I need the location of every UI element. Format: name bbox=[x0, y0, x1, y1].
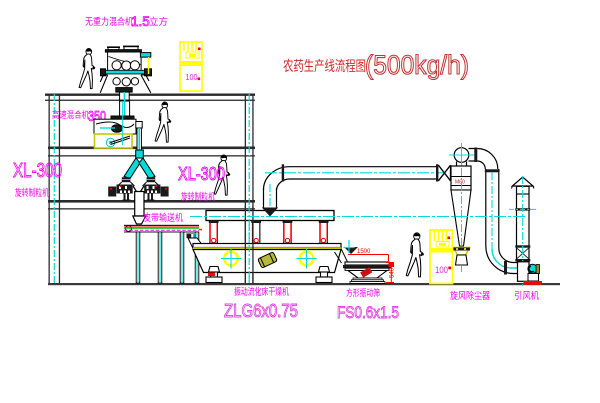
svg-text:1500: 1500 bbox=[357, 249, 371, 255]
svg-text:高速混合机: 高速混合机 bbox=[52, 109, 89, 120]
svg-text:XL-300: XL-300 bbox=[13, 160, 62, 182]
svg-text:皮带输送机: 皮带输送机 bbox=[143, 212, 183, 224]
svg-text:100: 100 bbox=[435, 265, 448, 275]
svg-text:(500kg/h): (500kg/h) bbox=[365, 50, 469, 80]
svg-text:XL-300: XL-300 bbox=[178, 164, 225, 184]
svg-text:1.5: 1.5 bbox=[131, 14, 150, 29]
svg-text:立方: 立方 bbox=[149, 16, 168, 28]
svg-text:FS0.6x1.5: FS0.6x1.5 bbox=[337, 303, 399, 322]
svg-text:540: 540 bbox=[390, 267, 396, 278]
svg-text:100: 100 bbox=[186, 72, 198, 82]
svg-text:振动流化床干燥机: 振动流化床干燥机 bbox=[234, 286, 289, 298]
svg-text:M60: M60 bbox=[455, 180, 465, 186]
svg-text:ZLG6x0.75: ZLG6x0.75 bbox=[224, 301, 298, 321]
svg-text:农药生产线流程图: 农药生产线流程图 bbox=[283, 58, 366, 74]
svg-text:方形振动筛: 方形振动筛 bbox=[346, 287, 380, 298]
svg-text:引风机: 引风机 bbox=[514, 290, 539, 302]
svg-text:无重力混合机: 无重力混合机 bbox=[85, 16, 133, 28]
svg-text:旋转制粒机: 旋转制粒机 bbox=[15, 187, 49, 199]
svg-text:旋转制粒机: 旋转制粒机 bbox=[181, 191, 215, 203]
svg-text:旋风除尘器: 旋风除尘器 bbox=[450, 290, 490, 302]
